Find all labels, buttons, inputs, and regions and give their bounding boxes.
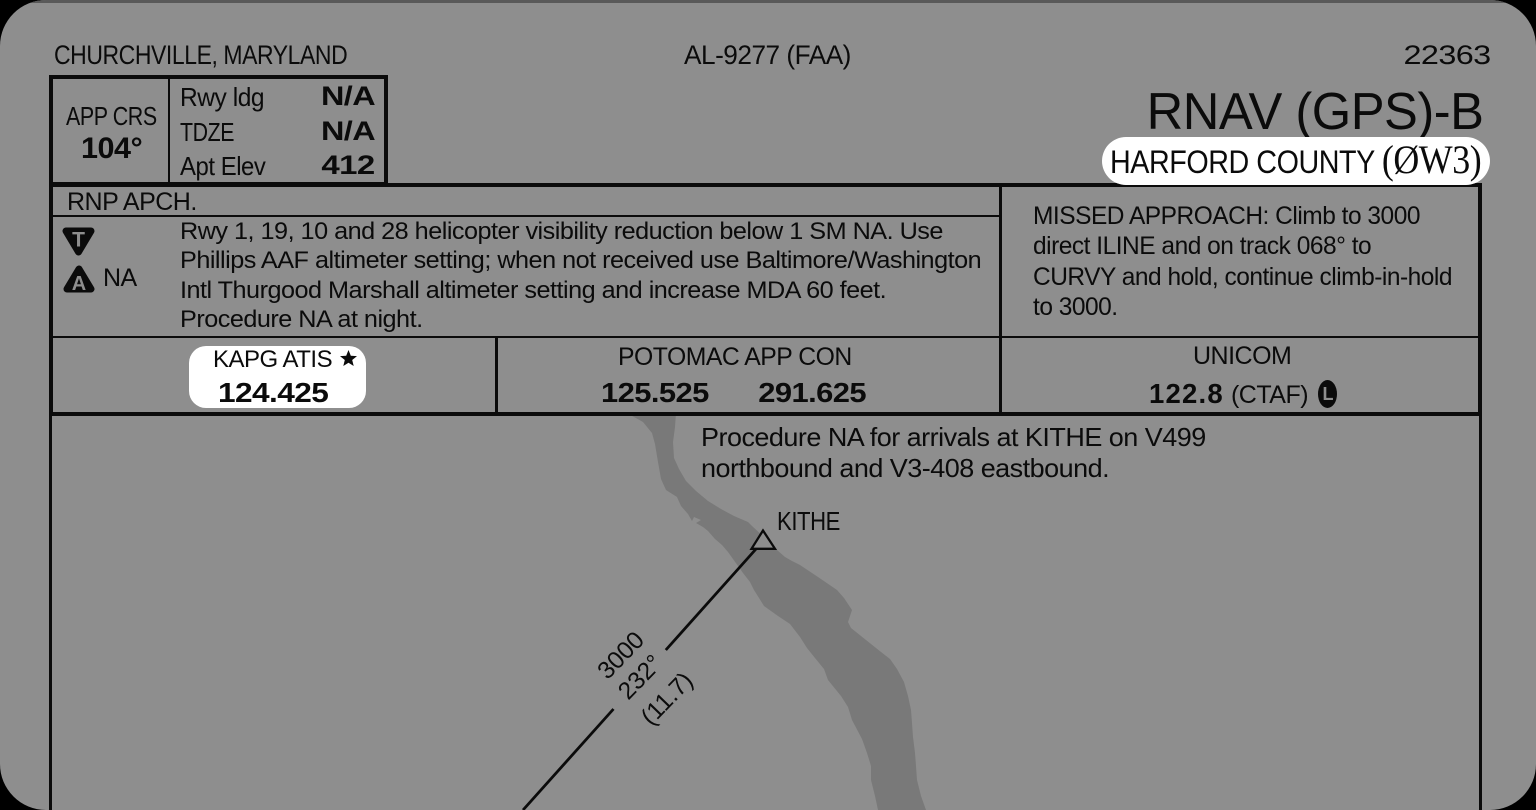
- svg-text:A: A: [72, 273, 86, 293]
- svg-text:T: T: [72, 229, 85, 252]
